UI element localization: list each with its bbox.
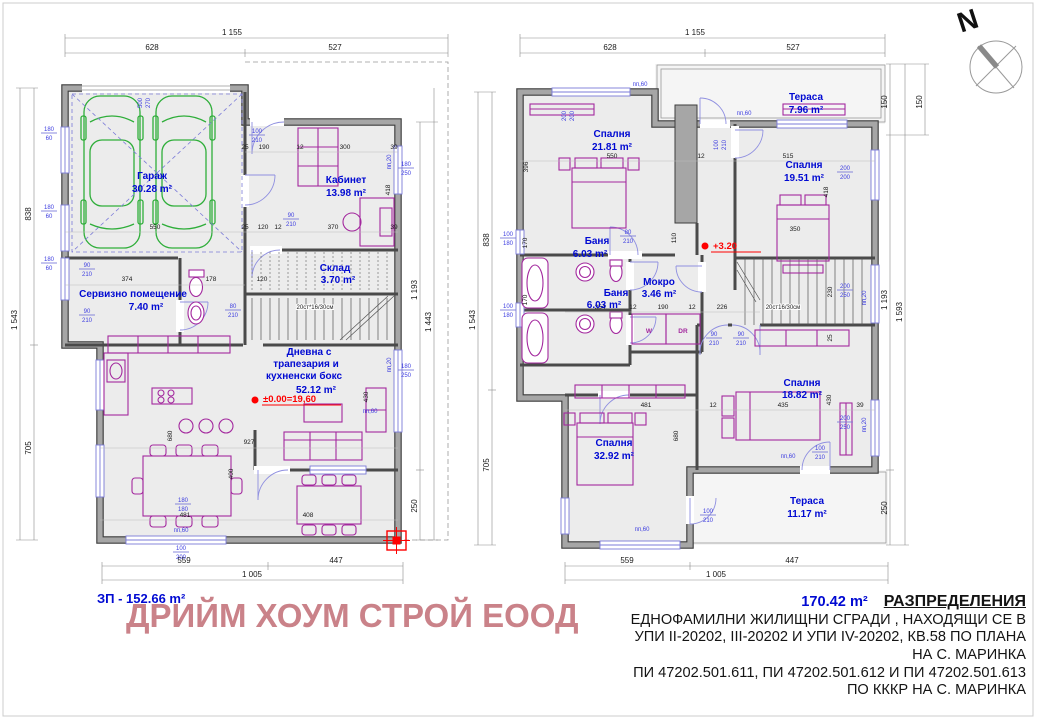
dim-label: 170 [522,237,529,248]
room-label: Спалня [785,160,822,171]
dim-label: 39 [390,224,398,231]
dim-label: 1 443 [424,311,433,332]
dim-label: 210 [623,239,634,245]
dim-label: 90 [84,263,91,269]
dim-label: 1 543 [468,309,477,330]
dim-label: 1 593 [895,301,904,322]
dim-label: 100 [252,129,263,135]
dim-label: 210 [703,518,714,524]
dim-label: 250 [410,499,419,513]
room-label: Спалня [783,378,820,389]
dim-label: 927 [244,439,255,446]
dim-label: 80 [625,230,632,236]
dim-label: 180 [178,507,189,513]
dim-label: 250 [401,171,412,177]
dim-label: 705 [24,441,33,455]
dim-label: 200 [840,416,851,422]
dim-label: 250 [840,293,851,299]
dim-label: 180 [44,205,55,211]
dim-label: 418 [385,184,392,195]
dim-label: пп,20 [862,290,868,306]
dim-label: 150 [915,95,924,109]
dim-label: 90 [738,332,745,338]
dim-label: 150 [880,95,889,109]
dim-label: 226 [717,304,728,311]
title-line: ПИ 47202.501.611, ПИ 47202.501.612 И ПИ … [546,665,1026,683]
dim-label: 400 [228,468,235,479]
washer-label: W [646,328,653,335]
room-label: трапезария и [273,359,339,370]
dim-label: 210 [82,272,93,278]
room-area: 21.81 m² [592,142,633,153]
dim-label: 838 [24,207,33,221]
room-area: 52.12 m² [296,385,337,396]
dim-label: 100 [703,509,714,515]
dim-label: 1 193 [410,279,419,300]
dim-label: 12 [688,304,696,311]
dim-label: 180 [503,313,514,319]
dim-label: 39 [856,402,864,409]
dim-label: 435 [778,402,789,409]
dim-label: 100 [815,446,826,452]
dim-label: 80 [230,304,237,310]
room-label: Склад [320,263,351,274]
room-area: 32.92 m² [594,451,635,462]
dim-label: 12 [629,304,637,311]
dim-label: 396 [523,161,530,172]
dim-label: 447 [785,556,799,565]
dim-label: 418 [823,186,830,197]
dim-label: 180 [503,241,514,247]
dim-label: 60 [46,214,53,220]
room-area: 18.82 m² [782,390,823,401]
room-label: Гараж [137,171,168,182]
dim-label: 447 [329,556,343,565]
title-line: ЕДНОФАМИЛНИ ЖИЛИЩНИ СГРАДИ , НАХОДЯЩИ СЕ… [546,612,1026,630]
dim-label: 200 [840,166,851,172]
dim-label: 430 [363,391,370,402]
dim-label: пп,60 [174,528,190,534]
dim-label: пп,60 [635,527,651,533]
dim-label: 527 [786,43,800,52]
title-line: НА С. МАРИНКА [546,647,1026,665]
room-area: 6.03 m² [587,300,622,311]
dim-label: 100 [176,546,187,552]
dim-label: пп,60 [633,82,649,88]
north-arrow-icon: N [953,3,1022,93]
dim-label: 1 193 [880,289,889,310]
dim-label: 200 [570,110,576,121]
dim-label: 60 [46,266,53,272]
dim-label: 270 [146,97,152,108]
ground-floor-plan: ±0.00=19,60 1 155 628 527 1 543 838 [10,28,448,584]
floorplan-sheet: ±0.00=19,60 1 155 628 527 1 543 838 [0,0,1037,720]
dim-label: 350 [790,226,801,233]
dim-label: 370 [328,224,339,231]
dim-label: 180 [401,364,412,370]
dim-label: 1 543 [10,309,19,330]
dim-label: 250 [880,501,889,515]
terrace-bottom-deck [690,470,888,545]
dim-label: 300 [340,144,351,151]
room-area: 30.28 m² [132,184,173,195]
title-heading: РАЗПРЕДЕЛЕНИЯ [884,592,1026,611]
stairs-note: 20ст16/30см [766,305,801,311]
dim-label: 190 [259,144,270,151]
room-area: 11.17 m² [787,509,827,520]
room-area: 13.98 m² [326,188,367,199]
dim-label: 210 [82,318,93,324]
dim-label: 628 [145,43,159,52]
dim-label: 1 155 [222,28,243,37]
dim-label: 210 [286,222,297,228]
dim-label: 680 [167,430,174,441]
dim-label: пп,60 [363,409,379,415]
dim-label: 481 [641,402,652,409]
upper-floor-plan: W DR +3.20 [468,28,929,584]
dim-label: 1 005 [242,570,263,579]
title-line: УПИ II-20202, III-20202 И УПИ IV-20202, … [546,629,1026,647]
dim-label: 25 [827,334,834,342]
upper-floor-area-label: 170.42 m² [801,594,868,612]
dim-label: 628 [603,43,617,52]
dim-label: 200 [840,175,851,181]
dim-label: 200 [840,284,851,290]
room-label: Дневна с [287,347,332,358]
room-label: Баня [585,236,610,247]
dim-label: 250 [840,425,851,431]
dim-label: пп,20 [387,154,393,170]
garage-door [82,83,230,93]
dim-label: 180 [178,498,189,504]
dim-label: 60 [46,136,53,142]
dim-label: пп,20 [387,357,393,373]
dim-label: 210 [252,138,263,144]
room-label: Спалня [593,129,630,140]
dim-label: 110 [671,232,678,243]
room-label: Тераса [789,92,824,103]
dim-label: 25 [241,224,249,231]
dim-label: 180 [401,162,412,168]
dim-label: 210 [815,455,826,461]
dim-label: 210 [709,341,720,347]
dim-label: 12 [296,144,304,151]
dim-label: 481 [180,512,191,519]
dim-label: 550 [150,224,161,231]
dryer-label: DR [678,328,688,335]
dim-label: 250 [401,373,412,379]
dim-label: 200 [562,110,568,121]
dim-label: 430 [826,394,833,405]
dim-label: 180 [44,257,55,263]
dim-label: 210 [228,313,239,319]
dim-label: 408 [303,512,314,519]
dim-label: 500 [138,97,144,108]
dim-label: 90 [711,332,718,338]
room-label: кухненски бокс [266,370,343,382]
title-block: 170.42 m² РАЗПРЕДЕЛЕНИЯ ЕДНОФАМИЛНИ ЖИЛИ… [546,592,1026,700]
room-label: Тераса [790,496,825,507]
dim-label: 210 [736,341,747,347]
title-line: ПО КККР НА С. МАРИНКА [546,682,1026,700]
room-area: 3.70 m² [321,275,356,286]
dim-label: 559 [620,556,634,565]
dim-label: 705 [482,458,491,472]
room-area: 6.03 m² [573,249,608,260]
level-text: +3.20 [713,241,737,252]
section-target-icon [383,527,410,554]
dim-label: 374 [122,276,133,283]
dim-label: 180 [44,127,55,133]
room-area: 3.46 m² [642,289,677,300]
dim-label: 39 [390,144,398,151]
dim-label: 515 [783,153,794,160]
room-area: 19.51 m² [784,173,825,184]
dim-label: 838 [482,233,491,247]
dim-label: пп,60 [781,454,797,460]
dim-label: 1 155 [685,28,706,37]
dim-label: 12 [709,402,717,409]
dim-label: 230 [827,286,834,297]
dim-label: 90 [288,213,295,219]
room-label: Баня [604,288,629,299]
dim-label: 680 [673,430,680,441]
dim-label: пп,20 [862,417,868,433]
dim-label: 90 [84,309,91,315]
dim-label: пп,60 [737,111,753,117]
dim-label: 550 [607,153,618,160]
dim-label: 210 [722,139,728,150]
dim-label: 100 [714,139,720,150]
dim-label: 100 [503,304,514,310]
dim-label: 120 [258,224,269,231]
room-area: 7.96 m² [789,105,824,116]
room-label: Спалня [595,438,632,449]
dim-label: 25 [241,144,249,151]
room-label: Мокро [643,277,675,288]
dim-label: 120 [257,276,268,283]
dim-label: 527 [328,43,342,52]
dim-label: 200 [176,555,187,561]
dim-label: 1 005 [706,570,727,579]
company-name: ДРИЙМ ХОУМ СТРОЙ ЕООД [126,597,579,635]
dim-label: 190 [658,304,669,311]
dim-label: 170 [522,294,529,305]
room-label: Кабинет [326,174,367,186]
dim-label: 12 [274,224,282,231]
north-label: N [953,3,982,39]
dim-label: 178 [206,276,217,283]
dim-label: 100 [503,232,514,238]
room-area: 7.40 m² [129,302,164,313]
room-label: Сервизно помещение [79,289,187,300]
dim-label: 12 [697,153,705,160]
stairs-note: 20ст*16/30см [297,305,334,311]
